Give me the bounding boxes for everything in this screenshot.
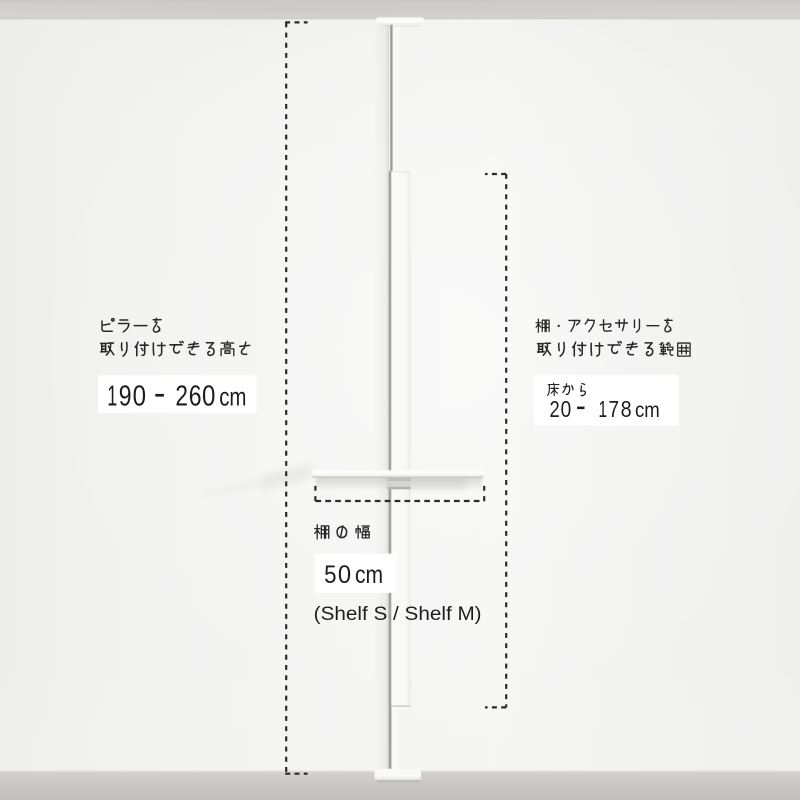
svg-text:9: 9 <box>119 380 132 412</box>
svg-text:cm: cm <box>635 399 660 422</box>
svg-text:0: 0 <box>133 380 146 412</box>
svg-text:7: 7 <box>609 396 620 422</box>
svg-text:1: 1 <box>107 380 117 412</box>
svg-text:6: 6 <box>189 380 202 412</box>
svg-text:0: 0 <box>202 380 215 412</box>
svg-text:(Shelf S / Shelf M): (Shelf S / Shelf M) <box>314 604 482 625</box>
svg-text:5: 5 <box>324 561 336 589</box>
svg-text:8: 8 <box>621 396 632 422</box>
svg-text:cm: cm <box>219 381 246 411</box>
svg-text:0: 0 <box>561 396 572 422</box>
svg-text:2: 2 <box>175 380 188 412</box>
svg-text:2: 2 <box>550 396 560 422</box>
svg-text:0: 0 <box>338 561 351 589</box>
svg-text:1: 1 <box>599 396 608 422</box>
svg-text:cm: cm <box>355 561 383 589</box>
